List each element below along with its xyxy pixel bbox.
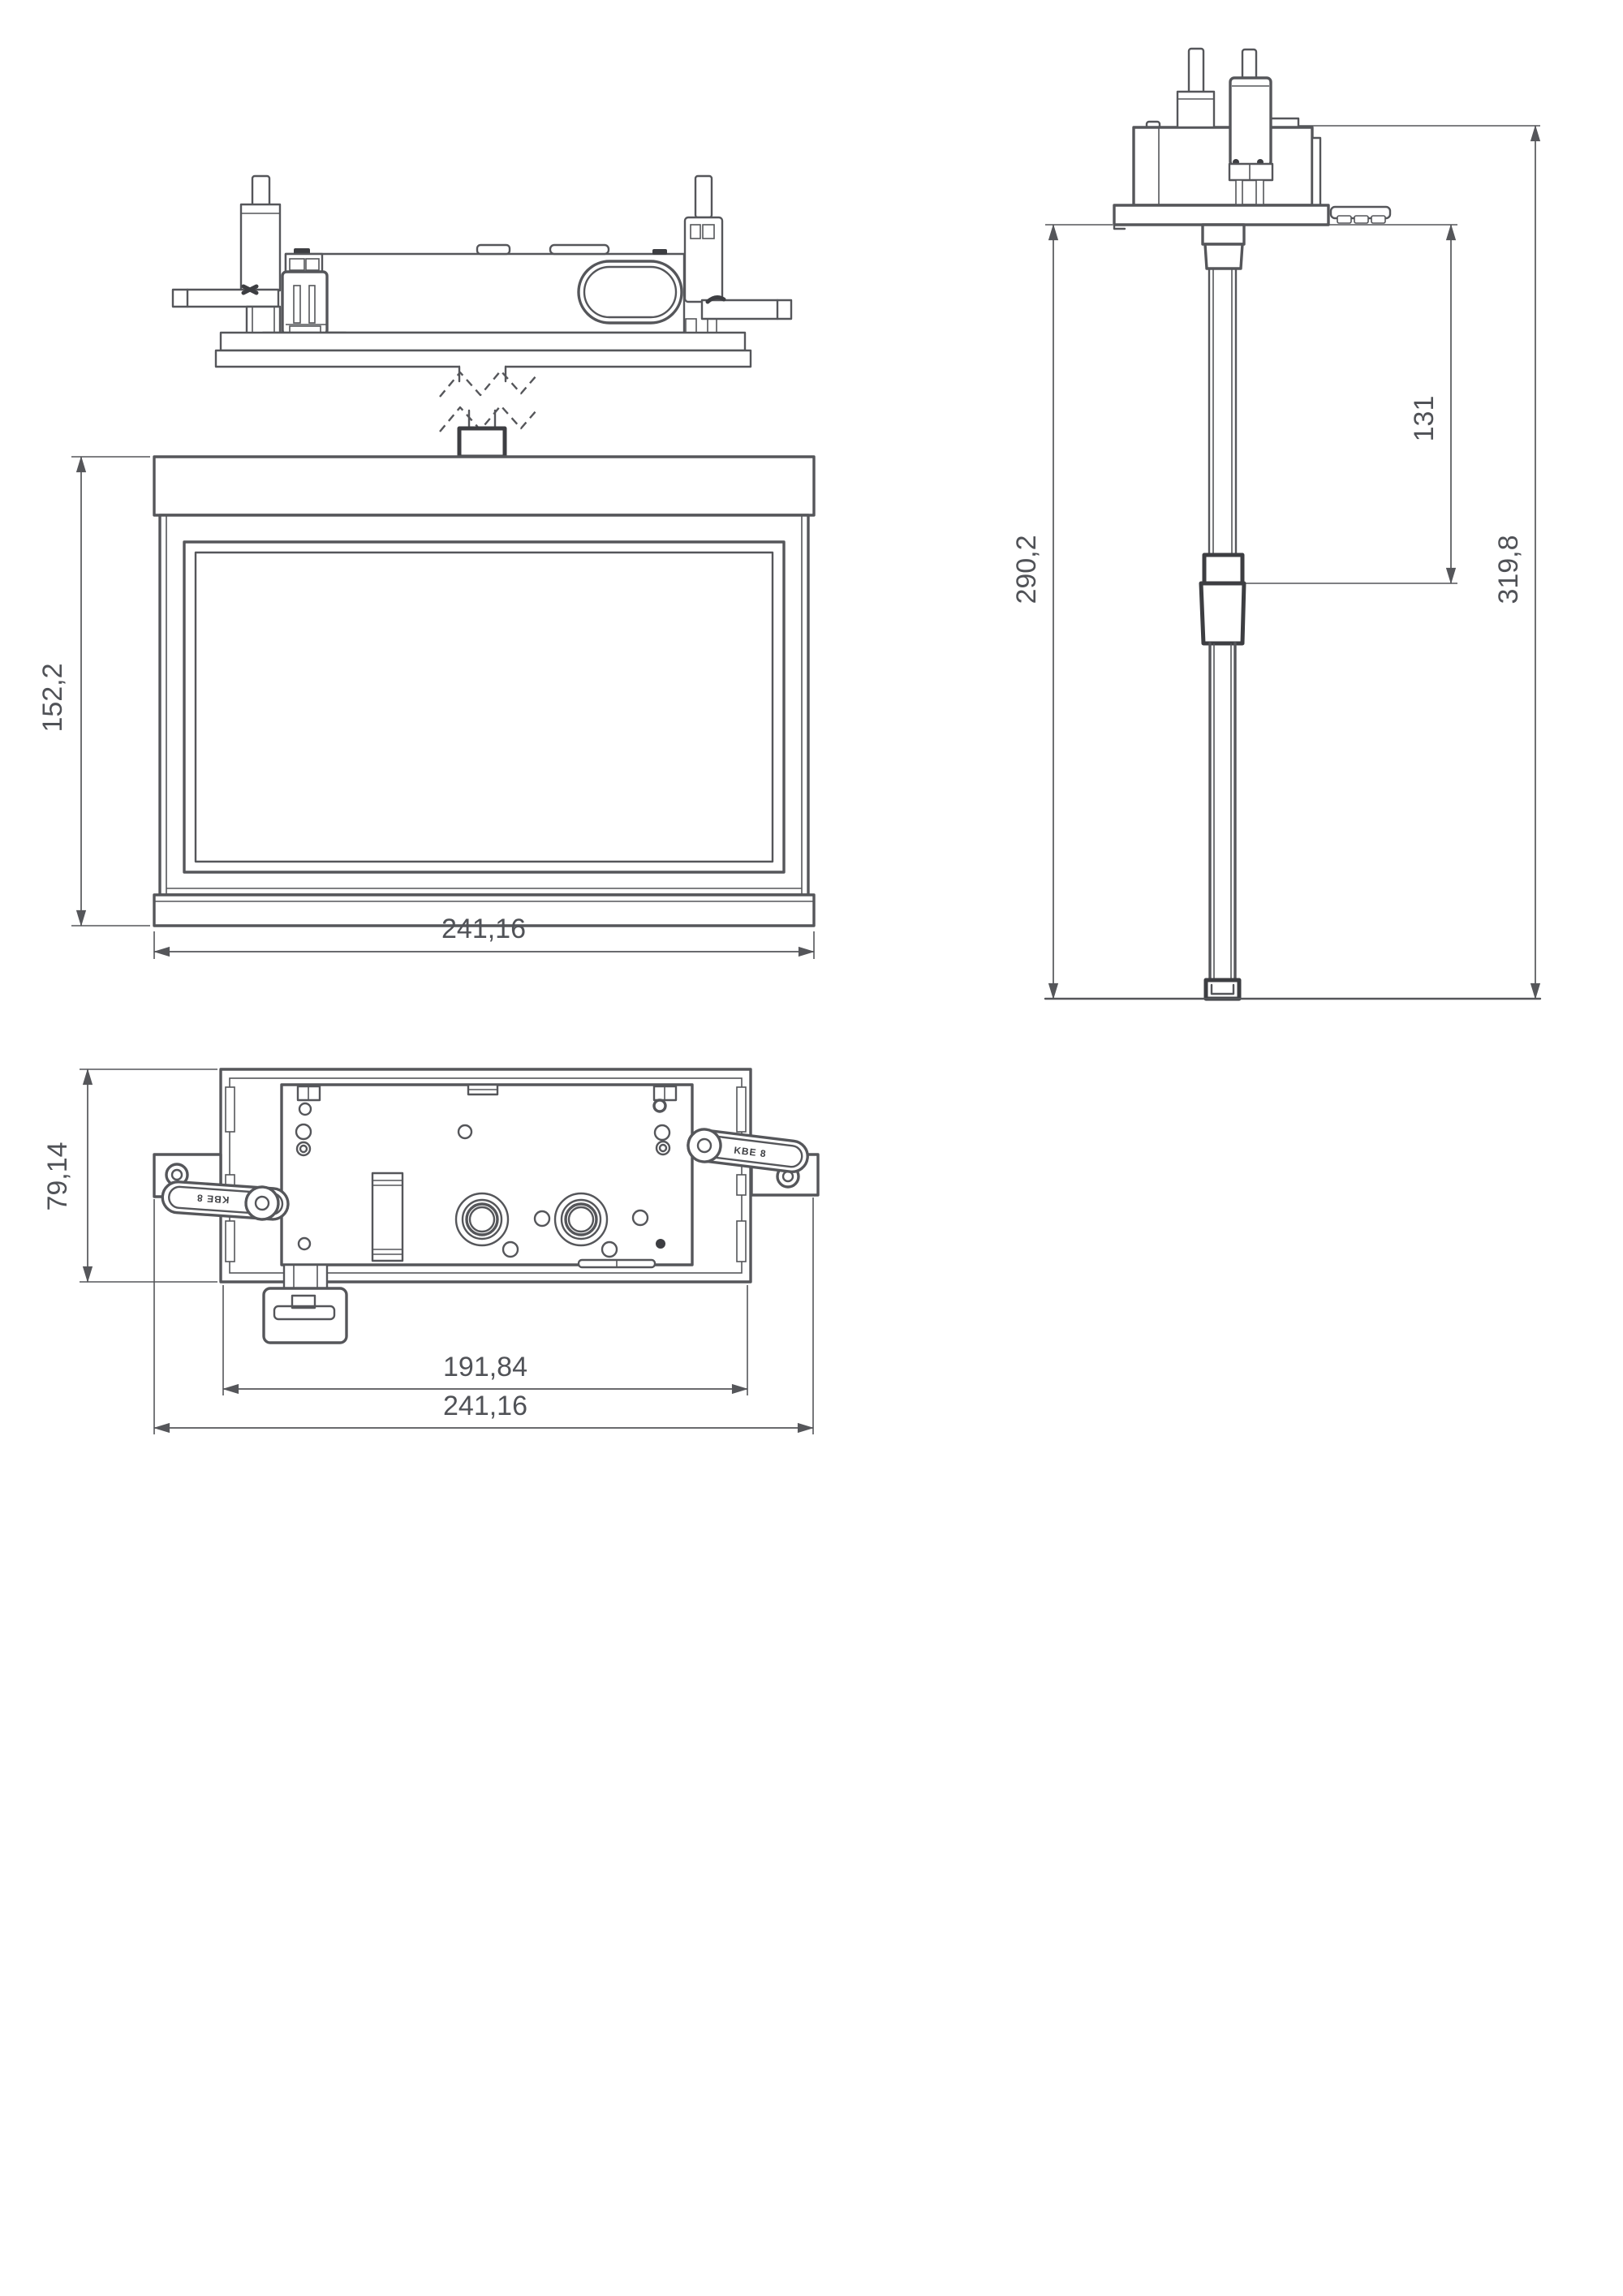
drawing-page: 152,2 241,16 [0, 0, 1623, 2296]
right-stud-rod [695, 176, 712, 217]
side-stud-right [1242, 49, 1256, 80]
technical-drawing: 152,2 241,16 [0, 0, 1623, 2296]
view-front: 152,2 241,16 [37, 457, 814, 959]
dim-plan-overall-width-label: 241,16 [443, 1391, 527, 1421]
terminal-block [372, 1173, 403, 1261]
side-ceiling-flange [1114, 205, 1328, 225]
ceiling-trim-upper [221, 333, 745, 350]
dim-plan-body-width-label: 191,84 [443, 1352, 527, 1382]
stem-collar-lower [1205, 244, 1242, 269]
dim-front-height-label: 152,2 [37, 663, 68, 732]
front-canopy [154, 457, 814, 515]
left-mounting-arm [173, 290, 278, 307]
suspension-stub [459, 428, 505, 457]
side-stud-left [1189, 49, 1203, 93]
dim-plan-depth-label: 79,14 [42, 1142, 73, 1210]
view-plan: KBE 8 KBE 8 79,14 191,84 241,16 [42, 1069, 818, 1434]
tube-joint-upper [1204, 555, 1242, 583]
dim-side-overall-label: 319,8 [1493, 535, 1524, 604]
dim-side-recess-label: 290,2 [1011, 535, 1042, 604]
stem-collar-upper [1203, 225, 1244, 244]
cable-oval [579, 261, 682, 323]
left-stud-rod [252, 176, 269, 207]
dim-front-width-label: 241,16 [441, 914, 526, 944]
spring-label-left: KBE 8 [196, 1192, 230, 1206]
left-stud-body [241, 204, 280, 290]
view-recessed-assembly [173, 176, 791, 457]
side-gear-box [1134, 127, 1312, 205]
tube-joint-lower [1201, 583, 1244, 643]
front-housing [160, 515, 808, 895]
dim-side-upper-label: 131 [1409, 396, 1440, 442]
break-symbol-row1 [440, 371, 536, 397]
view-side-suspension: 290,2 131 319,8 [1011, 49, 1540, 999]
side-stud-housing [1230, 78, 1271, 166]
